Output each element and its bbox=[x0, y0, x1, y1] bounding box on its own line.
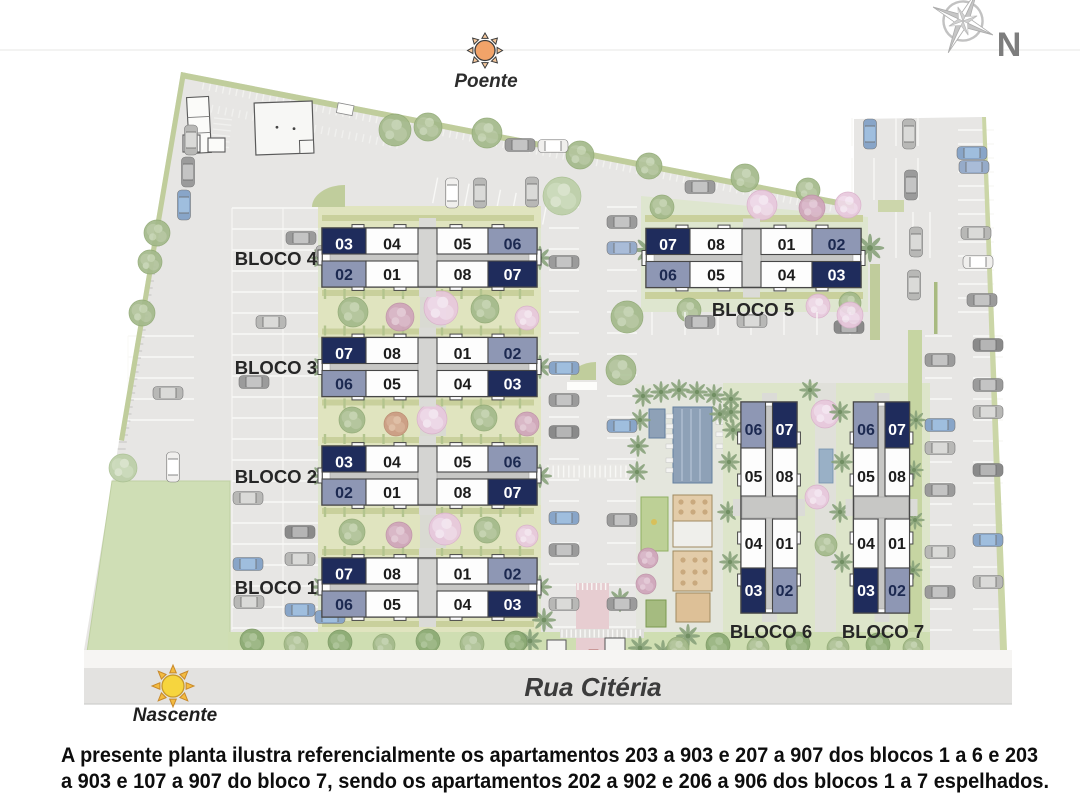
svg-text:08: 08 bbox=[383, 346, 401, 363]
svg-text:04: 04 bbox=[383, 237, 401, 254]
svg-text:Rua Citéria: Rua Citéria bbox=[524, 672, 661, 702]
svg-text:05: 05 bbox=[454, 237, 472, 254]
svg-text:04: 04 bbox=[778, 268, 796, 285]
svg-text:07: 07 bbox=[335, 567, 353, 584]
svg-text:01: 01 bbox=[454, 567, 472, 584]
svg-text:02: 02 bbox=[776, 583, 794, 600]
svg-text:N: N bbox=[997, 26, 1022, 64]
svg-text:03: 03 bbox=[745, 583, 763, 600]
svg-text:BLOCO 6: BLOCO 6 bbox=[730, 621, 812, 642]
svg-text:01: 01 bbox=[454, 346, 472, 363]
svg-text:06: 06 bbox=[504, 237, 522, 254]
svg-text:06: 06 bbox=[659, 268, 677, 285]
svg-text:02: 02 bbox=[335, 267, 353, 284]
svg-text:04: 04 bbox=[383, 455, 401, 472]
svg-text:BLOCO 2: BLOCO 2 bbox=[235, 466, 317, 487]
svg-text:06: 06 bbox=[335, 377, 353, 394]
svg-text:03: 03 bbox=[504, 377, 522, 394]
svg-text:04: 04 bbox=[454, 377, 472, 394]
svg-text:07: 07 bbox=[776, 422, 794, 439]
svg-text:01: 01 bbox=[888, 536, 906, 553]
svg-text:Nascente: Nascente bbox=[133, 705, 218, 726]
svg-text:02: 02 bbox=[504, 567, 522, 584]
svg-text:BLOCO 4: BLOCO 4 bbox=[235, 248, 318, 269]
svg-text:Poente: Poente bbox=[454, 71, 518, 92]
svg-text:02: 02 bbox=[335, 485, 353, 502]
svg-text:03: 03 bbox=[857, 583, 875, 600]
svg-text:BLOCO 7: BLOCO 7 bbox=[842, 621, 924, 642]
svg-text:01: 01 bbox=[776, 536, 794, 553]
svg-text:08: 08 bbox=[707, 237, 725, 254]
svg-text:07: 07 bbox=[888, 422, 906, 439]
svg-text:BLOCO 1: BLOCO 1 bbox=[235, 577, 317, 598]
svg-text:05: 05 bbox=[383, 597, 401, 614]
svg-text:02: 02 bbox=[888, 583, 906, 600]
svg-text:01: 01 bbox=[778, 237, 796, 254]
svg-text:02: 02 bbox=[828, 237, 846, 254]
svg-text:08: 08 bbox=[888, 469, 906, 486]
svg-text:BLOCO 3: BLOCO 3 bbox=[235, 357, 317, 378]
svg-text:06: 06 bbox=[857, 422, 875, 439]
svg-text:05: 05 bbox=[454, 455, 472, 472]
svg-text:a 903 e 107 a 907 do bloco 7,: a 903 e 107 a 907 do bloco 7, sendo os a… bbox=[61, 769, 1049, 793]
svg-text:08: 08 bbox=[454, 267, 472, 284]
svg-text:03: 03 bbox=[335, 237, 353, 254]
svg-text:07: 07 bbox=[659, 237, 677, 254]
svg-text:01: 01 bbox=[383, 267, 401, 284]
svg-text:BLOCO 5: BLOCO 5 bbox=[712, 299, 794, 320]
svg-text:05: 05 bbox=[857, 469, 875, 486]
svg-text:03: 03 bbox=[504, 597, 522, 614]
svg-text:08: 08 bbox=[776, 469, 794, 486]
svg-text:07: 07 bbox=[504, 267, 522, 284]
svg-text:01: 01 bbox=[383, 485, 401, 502]
svg-text:06: 06 bbox=[335, 597, 353, 614]
svg-text:08: 08 bbox=[454, 485, 472, 502]
svg-text:08: 08 bbox=[383, 567, 401, 584]
svg-text:A presente planta ilustra refe: A presente planta ilustra referencialmen… bbox=[61, 743, 1038, 767]
svg-text:04: 04 bbox=[857, 536, 875, 553]
svg-text:05: 05 bbox=[707, 268, 725, 285]
svg-text:04: 04 bbox=[454, 597, 472, 614]
svg-text:02: 02 bbox=[504, 346, 522, 363]
svg-text:03: 03 bbox=[828, 268, 846, 285]
svg-text:06: 06 bbox=[504, 455, 522, 472]
svg-text:07: 07 bbox=[504, 485, 522, 502]
svg-text:06: 06 bbox=[745, 422, 763, 439]
svg-text:07: 07 bbox=[335, 346, 353, 363]
svg-text:05: 05 bbox=[383, 377, 401, 394]
svg-text:03: 03 bbox=[335, 455, 353, 472]
svg-text:05: 05 bbox=[745, 469, 763, 486]
svg-text:04: 04 bbox=[745, 536, 763, 553]
